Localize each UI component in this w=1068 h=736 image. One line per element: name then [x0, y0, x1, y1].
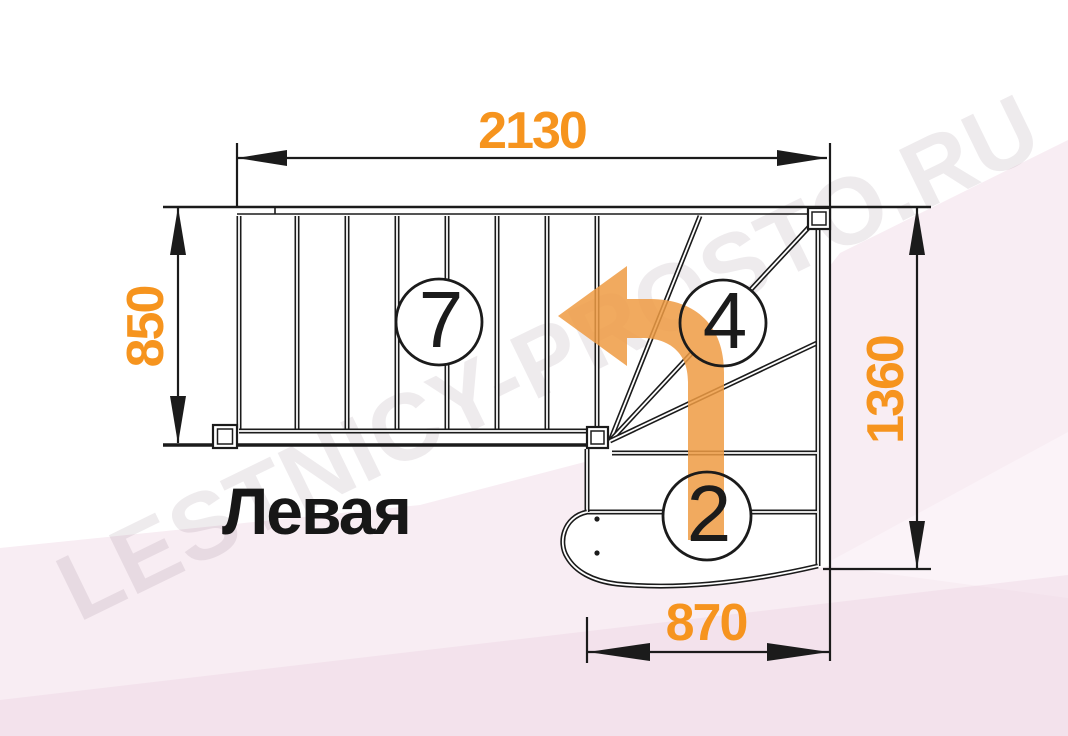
winder-step-count: 4 — [703, 281, 748, 361]
dimension-right-value: 1360 — [860, 336, 912, 444]
dimension-top-value: 2130 — [478, 105, 586, 157]
plan-title: Левая — [222, 478, 410, 544]
dimension-left-value: 850 — [120, 287, 172, 368]
dimension-bottom-value: 870 — [666, 597, 747, 649]
stair-plan-drawing: LESTNICY-PROSTO.RU — [0, 0, 1068, 736]
lower-flight-step-count: 2 — [687, 474, 732, 554]
upper-flight-step-count: 7 — [419, 280, 464, 360]
